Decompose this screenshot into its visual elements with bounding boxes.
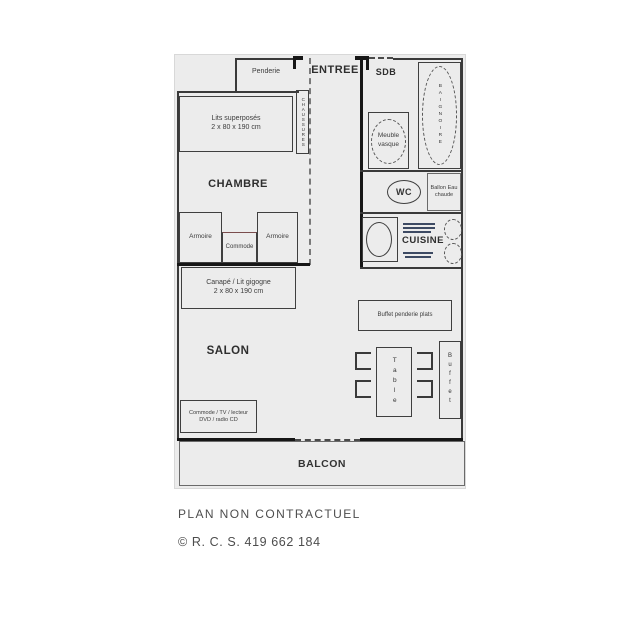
burner <box>444 219 462 240</box>
bathtub-label: BAIGNOIRE <box>437 84 442 147</box>
floor-plan: Penderie ENTREE CHAUSSURES Lits superpos… <box>174 54 466 489</box>
bunk-bed-label: Lits superposés <box>211 115 260 124</box>
bunk-bed-size: 2 x 80 x 190 cm <box>211 124 260 133</box>
balcon-label: BALCON <box>298 458 346 470</box>
plan-disclaimer: PLAN NON CONTRACTUEL <box>178 507 361 521</box>
sofa-size: 2 x 80 x 190 cm <box>206 288 271 297</box>
wall <box>360 267 463 269</box>
sofa-bed: Canapé / Lit gigogne 2 x 80 x 190 cm <box>181 267 296 309</box>
drainer-line <box>403 227 435 229</box>
wardrobe-right: Armoire <box>257 212 298 263</box>
wall <box>360 170 463 172</box>
buffet-cabinet: Buffet <box>439 341 461 419</box>
buffet-cabinet-label: Buffet <box>447 353 453 407</box>
bathtub-oval: BAIGNOIRE <box>422 66 457 165</box>
partition-dashed <box>309 58 311 265</box>
water-heater: Ballon Eau chaude <box>427 173 461 211</box>
commode-label: Commode <box>226 244 254 252</box>
cuisine-label: CUISINE <box>397 235 449 246</box>
shoe-cabinet: CHAUSSURES <box>296 90 309 154</box>
drainer-line <box>403 231 431 233</box>
sideboard-shelf: Buffet penderie plats <box>358 300 452 331</box>
commode: Commode <box>222 232 257 263</box>
wall <box>177 91 299 93</box>
drainer-line <box>403 223 435 225</box>
water-heater-label: Ballon Eau <box>430 185 457 192</box>
rcs-number: © R. C. S. 419 662 184 <box>178 535 321 549</box>
bunk-bed: Lits superposés 2 x 80 x 190 cm <box>179 96 293 152</box>
water-heater-label2: chaude <box>430 192 457 199</box>
wardrobe-left: Armoire <box>179 212 222 263</box>
chair <box>417 352 433 370</box>
shoe-cabinet-label: CHAUSSURES <box>300 97 305 147</box>
wall <box>360 212 463 214</box>
balcony: BALCON <box>179 441 465 486</box>
wall <box>177 263 310 266</box>
wall-dashed <box>369 57 393 59</box>
penderie-label: Penderie <box>237 68 295 77</box>
chair <box>417 380 433 398</box>
drainer-line <box>405 256 431 258</box>
tv-cabinet-label2: DVD / radio CD <box>189 417 248 424</box>
chair <box>355 380 371 398</box>
chambre-label: CHAMBRE <box>193 178 283 190</box>
washbasin-label2: vasque <box>378 141 399 149</box>
sdb-label: SDB <box>371 67 401 77</box>
chair <box>355 352 371 370</box>
drainer-line <box>403 252 433 254</box>
sink-bowl <box>366 222 392 257</box>
dining-table: Table <box>376 347 412 417</box>
sideboard-shelf-label: Buffet penderie plats <box>378 312 433 320</box>
tv-cabinet: Commode / TV / lecteur DVD / radio CD <box>180 400 257 433</box>
kitchen-sink <box>362 217 398 262</box>
wardrobe-right-label: Armoire <box>266 233 289 241</box>
dining-table-label: Table <box>391 357 398 407</box>
wc-label: WC <box>396 187 412 197</box>
wardrobe-left-label: Armoire <box>189 233 212 241</box>
burner <box>444 243 462 264</box>
salon-label: SALON <box>183 345 273 357</box>
wall <box>393 58 463 60</box>
wc-toilet: WC <box>387 180 421 204</box>
washbasin-unit: Meuble vasque <box>368 112 409 169</box>
page: { "plan": { "entree": { "label": "ENTREE… <box>0 0 637 640</box>
wall <box>235 58 297 60</box>
bathtub: BAIGNOIRE <box>418 62 461 169</box>
tv-cabinet-label: Commode / TV / lecteur <box>189 410 248 417</box>
washbasin-label: Meuble <box>378 132 399 140</box>
sofa-label: Canapé / Lit gigogne <box>206 279 271 288</box>
entree-label: ENTREE <box>308 64 362 76</box>
